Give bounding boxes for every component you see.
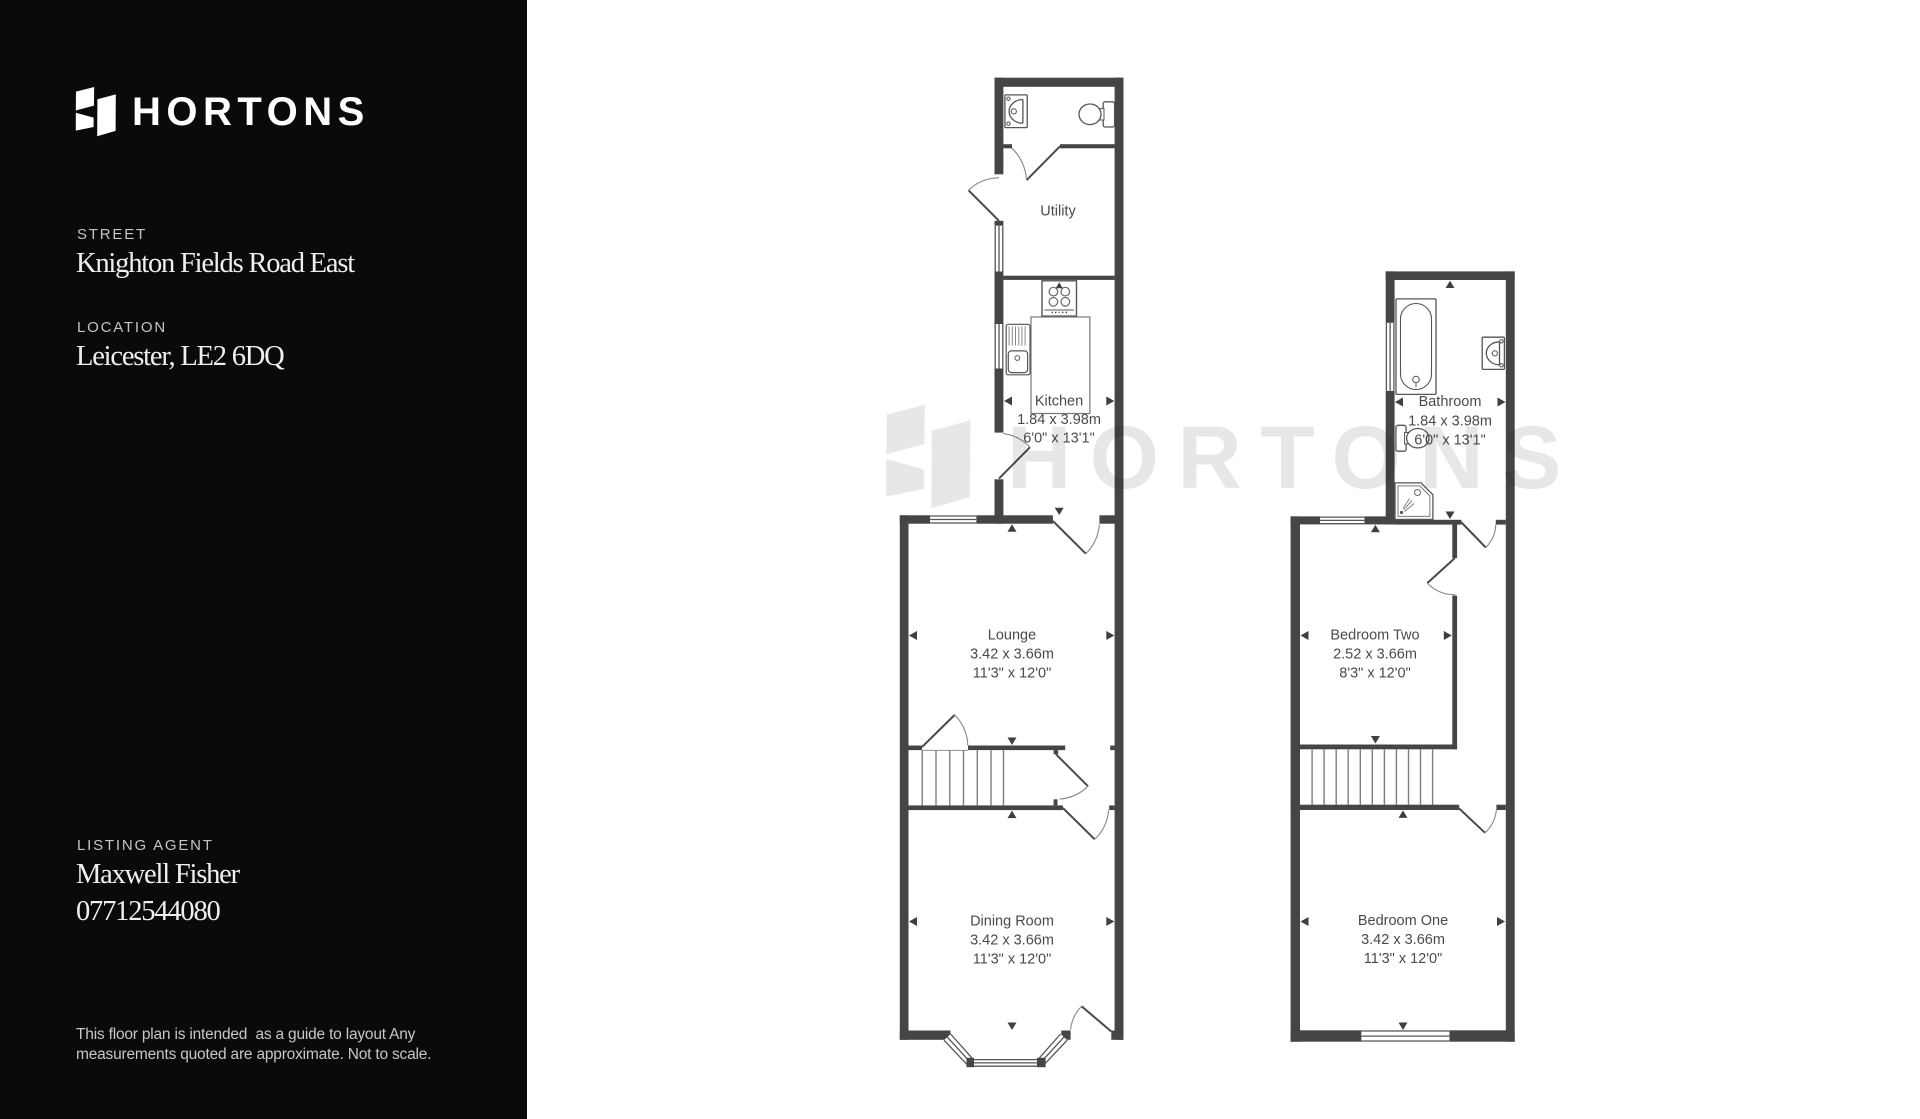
svg-text:2.52 x 3.66m: 2.52 x 3.66m [1333, 647, 1417, 663]
svg-text:Lounge: Lounge [988, 628, 1036, 644]
svg-text:3.42 x 3.66m: 3.42 x 3.66m [970, 933, 1054, 949]
svg-text:3.42 x 3.66m: 3.42 x 3.66m [1361, 932, 1445, 948]
svg-text:Bedroom Two: Bedroom Two [1330, 628, 1419, 644]
svg-text:HORTONS: HORTONS [1007, 407, 1580, 507]
svg-text:11'3" x 12'0": 11'3" x 12'0" [1364, 951, 1442, 967]
svg-text:11'3" x 12'0": 11'3" x 12'0" [973, 952, 1051, 968]
svg-text:Bedroom One: Bedroom One [1358, 913, 1448, 929]
svg-text:11'3" x 12'0": 11'3" x 12'0" [973, 666, 1051, 682]
svg-text:Utility: Utility [1040, 204, 1076, 220]
svg-text:3.42 x 3.66m: 3.42 x 3.66m [970, 647, 1054, 663]
svg-text:Dining Room: Dining Room [970, 914, 1054, 930]
svg-text:8'3" x 12'0": 8'3" x 12'0" [1339, 666, 1410, 682]
